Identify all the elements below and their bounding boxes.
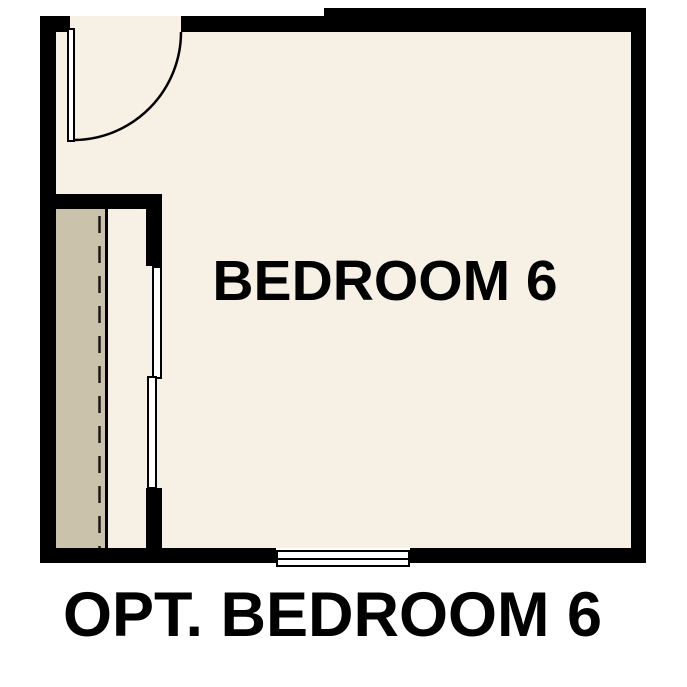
window-mid-line	[278, 558, 408, 560]
top-wall-mid-segment	[181, 16, 324, 32]
left-wall	[40, 16, 56, 563]
closet-shelf-edge-line	[105, 209, 108, 548]
bottom-wall-left-segment	[40, 548, 276, 563]
floorplan: BEDROOM 6 OPT. BEDROOM 6	[0, 0, 687, 687]
top-wall-right-segment	[324, 8, 646, 32]
room-label: BEDROOM 6	[150, 253, 620, 310]
plan-caption: OPT. BEDROOM 6	[0, 584, 676, 647]
bypass-door-lower-panel	[147, 376, 157, 489]
closet-top-wall	[40, 194, 162, 209]
closet-bottom-jamb	[146, 488, 162, 548]
window	[276, 550, 410, 567]
closet-shelf	[56, 209, 106, 548]
entry-door-leaf	[67, 28, 75, 142]
right-wall	[631, 8, 646, 563]
bottom-wall-right-segment	[410, 548, 646, 563]
door-opening-floor	[70, 16, 181, 32]
